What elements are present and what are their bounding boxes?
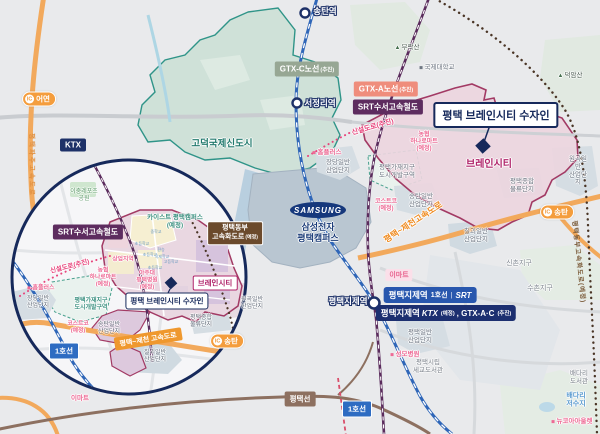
logistics-label-main: 평택종합 물류단지 (510, 178, 534, 194)
jangdang-label-main: 장당일반 산업단지 (326, 159, 350, 175)
poi-dot (313, 151, 316, 154)
school-label-transfer: 환승 (157, 248, 164, 252)
srt-badge-main: SRT수서고속철도 (353, 100, 423, 115)
gtx-c-badge: GTX-C노선(추진) (275, 62, 339, 77)
gtx-a-badge: GTX-A노선(추진) (354, 82, 418, 97)
samsung-campus-label: 삼성전자 평택캠퍼스 (297, 222, 338, 244)
newcore-text: 뉴코아아울렛 (557, 418, 593, 425)
school-label-elem1: 초등학교 (135, 242, 150, 246)
jije-name: 평택지제역 (381, 307, 420, 319)
emart-label-inset: 이마트 (71, 395, 89, 403)
gajae-label-main: 평택가재지구 도시개발구역 (379, 164, 415, 180)
chilgoe-label-inset: 칠괴일반 산업단지 (144, 350, 166, 364)
east-badge-line2-text: 고속화도로 (212, 233, 244, 240)
gtx-c-note: (추진) (320, 65, 334, 73)
srt-logo: SRT (456, 291, 472, 300)
poi-dot (391, 353, 394, 356)
gtx-ac-label: , GTX-A·C (457, 309, 495, 318)
school-label-high: 고등학교 (164, 260, 179, 264)
sinchon-label: 신촌지구 (506, 260, 532, 268)
chilgoe-label-main: 칠괴일반 산업단지 (464, 228, 488, 244)
sangeop-label-inset: 상업지역 (112, 257, 133, 264)
poi-dot (27, 286, 30, 289)
ic-icon: IC (543, 208, 552, 217)
homeplus-text: 홈플러스 (318, 149, 342, 156)
poi-dot (420, 66, 423, 69)
samsung-logo: SAMSUNG (290, 202, 346, 218)
gtx-c-label: GTX-C노선 (280, 64, 320, 75)
school-label-middle: 중학교 (150, 230, 161, 234)
suchon-label: 수촌지구 (527, 285, 553, 293)
ic-icon: IC (213, 337, 222, 346)
intl-univ-text: 국제대학교 (425, 64, 455, 71)
segyo-library-label: 평택시립 세교도서관 (413, 359, 443, 375)
line1-badge-inset: 1호선 (49, 343, 79, 360)
ic-songtan-badge-inset: IC송탄 (210, 334, 244, 349)
nonghyup-label-main: 농협 하나로마트 (예정) (410, 132, 438, 154)
pyeongtaek-line-badge: 평택선 (285, 392, 316, 407)
jije-badge-line1-srt: 평택지제역 1호선 | SRT (384, 287, 477, 303)
poi-dot (552, 420, 555, 423)
paju-expressway-vertical-label: 평택파주고속도로 (27, 133, 35, 197)
mountain-icon: ▲ (395, 45, 401, 51)
east-expressway-badge-inset: 평택동부 고속화도로(예정) (207, 221, 263, 245)
main-title-box: 평택 브레인시티 수자인 (433, 102, 558, 128)
station-label-seojeongni: 서정리역 (304, 98, 335, 108)
homeplus-label-inset: 홈플러스 (27, 285, 54, 292)
deogam-mountain-label: ▲덕암산 (558, 72, 583, 80)
gtx-note: (추진) (497, 309, 511, 317)
ic-icon: IC (25, 95, 34, 104)
baedari-reservoir-label: 배다리저수지 (564, 393, 588, 410)
homeplus-text: 홈플러스 (32, 285, 54, 291)
station-label-jije: 평택지제역 (328, 296, 367, 306)
jije-line1: 1호선 (431, 290, 448, 300)
burak-mountain-label: ▲부락산 (395, 44, 420, 52)
baedari-library-label: 배다리도서관 (569, 370, 590, 386)
newcore-label: 뉴코아아울렛 (552, 418, 593, 426)
east-badge-line1: 평택동부 (222, 224, 248, 233)
leports-park-label: 이충레포츠 공원 (70, 189, 98, 203)
inset-title-box: 평택 브레인시티 수자인 (125, 293, 208, 310)
songtan-ind-label-inset: 송탄일반 산업단지 (98, 322, 120, 336)
separator: | (451, 292, 453, 299)
wongok-label-inset: 원곡일반 산업단지 (241, 297, 263, 311)
logistics-label-inset: 평택종합 물류단지 (190, 315, 212, 329)
seongmo-label: 성모병원 (391, 351, 420, 359)
mountain-icon: ▲ (558, 73, 564, 79)
braincity-badge-inset: 브레인시티 (193, 276, 238, 291)
ic-songtan-label: 송탄 (224, 336, 238, 347)
ktx-badge: KTX (60, 139, 86, 152)
school-label-elem3: 초등학교 (148, 266, 163, 270)
gtx-a-note: (추진) (399, 85, 413, 93)
ic-songtan-badge-main: IC송탄 (540, 205, 574, 220)
seojeongni-station-marker (293, 99, 302, 108)
godeok-area (138, 8, 341, 175)
ktx-logo: KTX (422, 309, 438, 318)
emart-label-main: 이마트 (385, 269, 412, 281)
hill-area (350, 2, 430, 70)
pyeongtaek-line-branch (338, 342, 373, 395)
intl-univ-label: 국제대학교 (420, 64, 455, 72)
ajou-hospital-label-inset: 아주대 평택병원 (예정) (136, 271, 157, 292)
ic-songtan-label: 송탄 (554, 207, 568, 218)
east-badge-line2: 고속화도로(예정) (212, 233, 258, 242)
wongok-label-main: 원곡일반 산업단지 (567, 155, 589, 186)
songtan-station-marker (301, 9, 310, 18)
godeok-label: 고덕국제신도시 (191, 138, 252, 149)
ktx-note: (예정) (441, 309, 455, 317)
braincity-label-main: 브레인시티 (466, 159, 512, 171)
ic-eoyeon-label: 어연 (36, 94, 50, 105)
costco-label-inset: 코스트코 (예정) (67, 321, 88, 335)
pt-ind-label-main: 평택일반 산업단지 (408, 329, 432, 345)
kaist-label-inset: 카이스트 평택캠퍼스 (예정) (147, 214, 203, 230)
songtan-ind-label-main: 송탄일반 산업단지 (409, 193, 433, 209)
east-badge-note: (예정) (245, 234, 258, 240)
deogam-text: 덕암산 (565, 72, 583, 79)
jije-name: 평택지제역 (389, 289, 428, 301)
nonghyup-label-inset: 농협 하나로마트 (예정) (90, 268, 117, 289)
ic-eoyeon-badge: IC어연 (22, 92, 56, 107)
pond (539, 402, 555, 412)
seongmo-text: 성모병원 (396, 351, 420, 358)
gajae-label-inset: 평택가재지구 도시개발구역 (74, 298, 107, 312)
jije-badge-ktx-gtx: 평택지제역 KTX (예정) , GTX-A·C (추진) (376, 305, 516, 321)
burak-text: 부락산 (402, 44, 420, 51)
homeplus-label-main: 홈플러스 (313, 149, 342, 157)
jangdang-label-inset: 장당일반 산업단지 (27, 296, 49, 310)
map-canvas: 송탄역 서정리역 평택지제역 KTX GTX-C노선(추진) GTX-A노선(추… (0, 0, 600, 434)
line1-badge-main: 1호선 (342, 401, 372, 418)
gtx-a-label: GTX-A노선 (359, 84, 399, 95)
costco-label-main: 코스트코 (예정) (375, 199, 397, 213)
station-label-songtan: 송탄역 (313, 6, 336, 16)
srt-badge-inset: SRT수서고속철도 (53, 225, 123, 240)
